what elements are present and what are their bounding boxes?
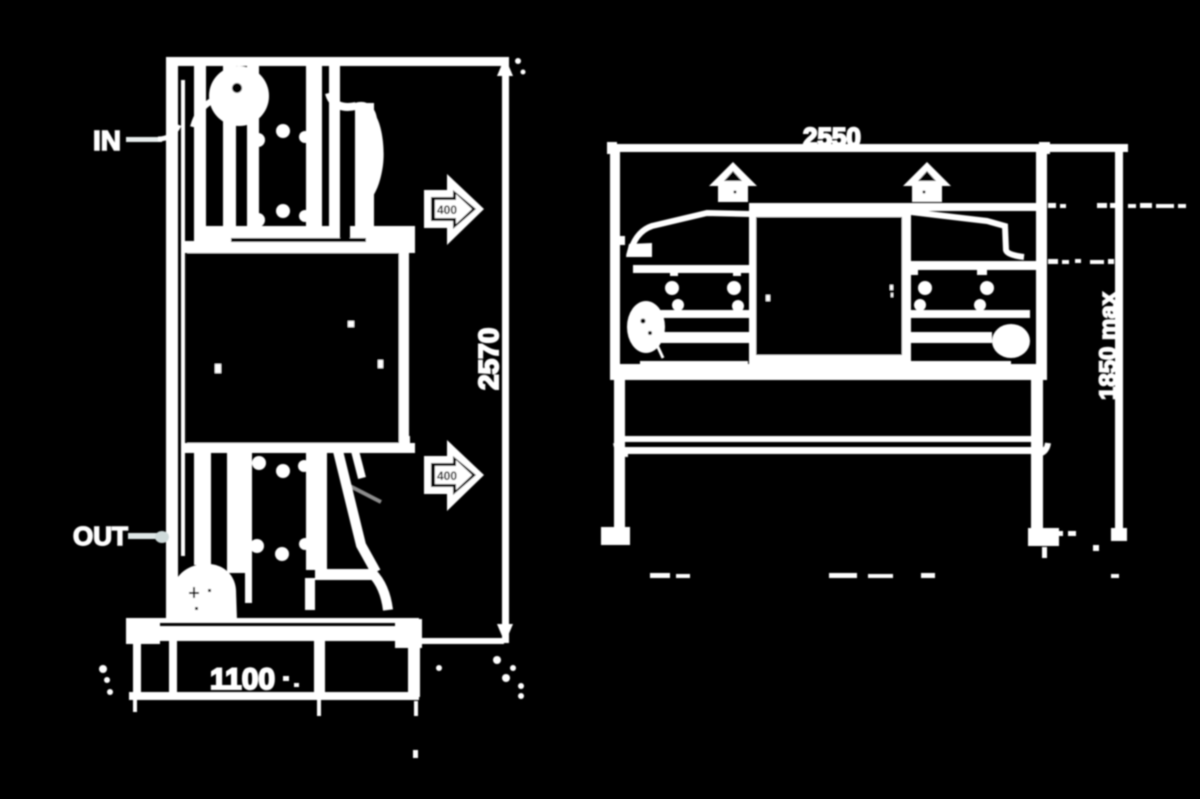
svg-text:2570: 2570	[473, 328, 504, 390]
svg-text:1850 max: 1850 max	[1095, 291, 1122, 400]
svg-text:IN: IN	[93, 125, 121, 156]
svg-text:400: 400	[437, 469, 457, 483]
svg-text:2550: 2550	[803, 122, 861, 152]
svg-text:1100: 1100	[210, 663, 275, 696]
svg-text:400: 400	[437, 203, 457, 217]
svg-text:OUT: OUT	[73, 521, 128, 551]
